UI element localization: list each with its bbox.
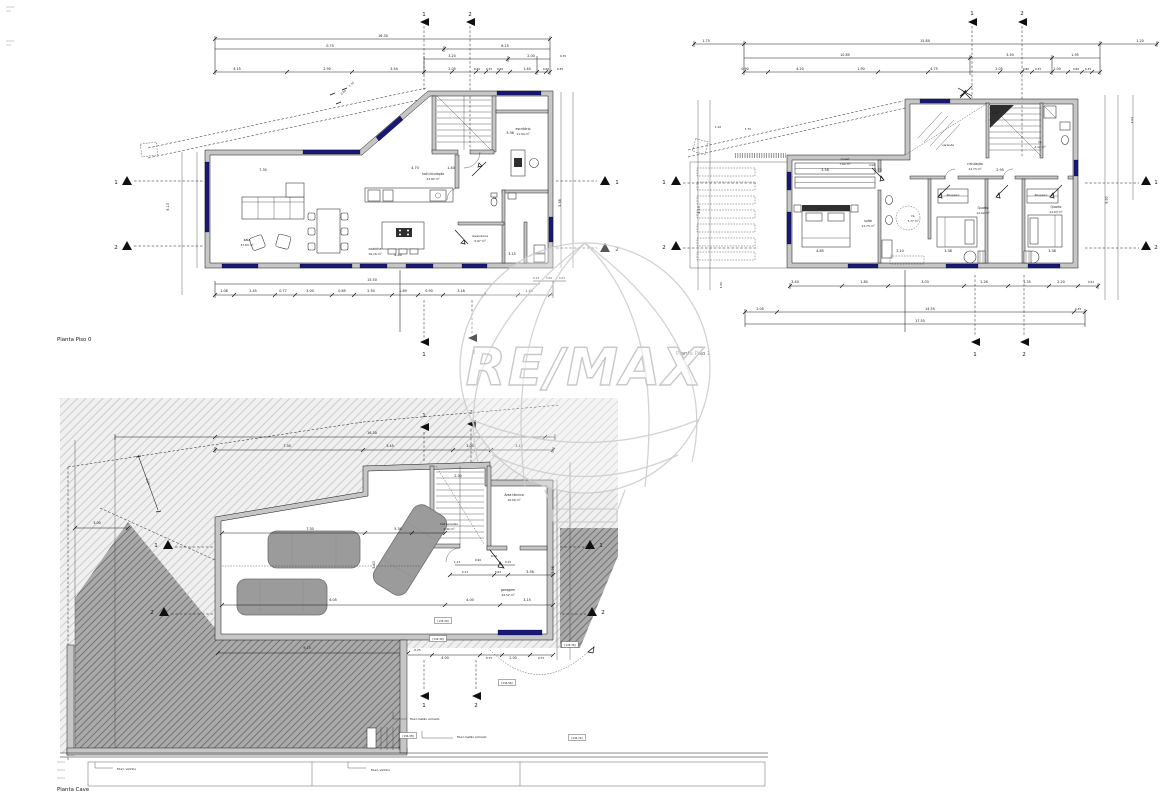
dim-label: 3.56 (526, 570, 534, 574)
room-label: suite (864, 219, 872, 223)
dim-label: 0.35 (1085, 67, 1091, 71)
dim-label: 5.58 (558, 199, 562, 207)
dim-label: 0.15 (505, 560, 511, 564)
piso0-dim-labels: 16.300.756.153.202.000.354.152.903.542.0… (166, 34, 566, 293)
plan-piso1: 1.7515.801.2010.853.501.950.904.201.904.… (662, 11, 1159, 358)
dim-label: 2.90 (323, 67, 331, 71)
dim-label: 1.08 (220, 289, 228, 293)
dim-label: 0.52 (1088, 280, 1094, 284)
room-label: Área técnica (504, 492, 523, 497)
dim-label: 1.95 (1071, 53, 1079, 57)
dim-label: 4.00 (441, 656, 449, 660)
section-marker: 1 (1154, 180, 1158, 186)
section-marker: 1 (114, 180, 118, 186)
piso0-furniture (242, 150, 545, 262)
blueprint-canvas: 16.300.756.153.202.000.354.152.903.542.0… (0, 0, 1167, 800)
dim-label: 0.62 (495, 570, 501, 574)
room-area: 12.63 m² (1049, 210, 1062, 214)
section-marker: 2 (150, 610, 154, 616)
dim-label: 9.15 (303, 646, 311, 650)
room-label: I.S. (493, 196, 498, 200)
dim-label: 2.95 (996, 168, 1004, 172)
dim-label: 3.50 (1006, 53, 1014, 57)
dim-label: 1.14 (348, 81, 355, 88)
dim-label: 1.80 (860, 280, 868, 284)
dim-label: 2.73 (874, 168, 882, 172)
section-marker: 2 (114, 245, 118, 251)
dim-label: 0.35 (486, 67, 492, 71)
dim-label: 9.97 (1105, 196, 1109, 204)
room-label: sala (244, 238, 251, 242)
dim-label: 2.05 (448, 67, 456, 71)
section-marker: 2 (662, 245, 666, 251)
dim-label: 16.30 (367, 431, 377, 435)
room-area: 4.42 m² (443, 527, 454, 531)
dim-label: 5.40 (372, 561, 376, 569)
room-label: hall escadas (440, 522, 458, 526)
drawing-sheet: 16.300.756.153.202.000.354.152.903.542.0… (0, 0, 1167, 800)
dim-label: 0.90 (475, 558, 481, 562)
room-label: Quarto (1051, 205, 1062, 209)
piso0-stairs (437, 96, 491, 150)
dim-label: 0.35 (1075, 307, 1081, 311)
section-marker: 1 (422, 352, 426, 358)
dim-label: 2.30 (454, 474, 462, 478)
piso1-dim-lines (692, 41, 1159, 332)
dim-label: 14.55 (925, 307, 935, 311)
wall-callout: Muro vizinho (371, 768, 390, 772)
dim-label: 2.05 (995, 67, 1003, 71)
wall-callout: Muro betão armado (410, 717, 440, 721)
dim-label: 15.80 (920, 39, 930, 43)
dim-label: 0.77 (279, 289, 287, 293)
section-marker: 1 (599, 543, 603, 549)
room-label: garagem (501, 588, 515, 592)
dim-label: 4.75 (930, 67, 938, 71)
dim-label: 3.00 (306, 289, 314, 293)
dim-label: 1.20 (1136, 39, 1144, 43)
dim-label: 0.60 (1073, 67, 1079, 71)
dim-label: 3.40 (791, 280, 799, 284)
plan-title-cave: Planta Cave (57, 787, 90, 793)
wall-callout: Muro betão armado (457, 735, 487, 739)
dim-label: 1.13 (454, 560, 460, 564)
dim-label: 0.35 (560, 54, 566, 58)
room-area: 4.12 m² (1034, 145, 1045, 149)
room-label: lavandaria (472, 234, 488, 238)
dim-label: 3.38 (944, 249, 952, 253)
section-marker: 1 (615, 180, 619, 186)
room-area: 7.77 m² (907, 219, 918, 223)
dim-label: 3.00 (93, 521, 101, 525)
dim-label: 4.00 (466, 598, 474, 602)
section-marker: 1 (422, 12, 426, 18)
dim-label: 1.10 (715, 125, 721, 129)
page-marks (6, 7, 14, 45)
level-tag: [134.40] (437, 619, 448, 623)
piso1-marker-labels: 12121212 (662, 11, 1158, 358)
dim-label: -0.25 (413, 648, 420, 652)
dim-label: 0.40 (491, 554, 497, 558)
dim-label: 0.75 (538, 656, 544, 660)
section-marker: 2 (1154, 245, 1158, 251)
dim-label: 1.90 (857, 67, 865, 71)
section-marker: 2 (468, 12, 472, 18)
room-label: circulação (967, 162, 983, 166)
dim-label: 17.55 (915, 319, 925, 323)
dim-label: 4.13 (697, 206, 701, 214)
section-marker: 1 (662, 180, 666, 186)
room-area: 23.92 m² (426, 177, 439, 181)
dim-label: 6.15 (501, 44, 509, 48)
dim-label: 3.00 (466, 444, 474, 448)
room-label: escritório (516, 127, 531, 131)
watermark-text: RE/MAX (466, 338, 706, 398)
room-label: cozinha (368, 247, 381, 251)
room-area: 14.73 m² (861, 224, 874, 228)
room-area: 11.94 m² (516, 132, 529, 136)
dim-label: 7.30 (306, 527, 314, 531)
dim-label: 1.02 (1130, 117, 1134, 123)
dim-label: 2.26 (980, 280, 988, 284)
dim-label: 2.00 (527, 54, 535, 58)
dim-label: 0.35 (1035, 67, 1041, 71)
dim-label: 3.20 (448, 54, 456, 58)
dim-label: 0.75 (326, 44, 334, 48)
dim-label: 2.50 (367, 289, 375, 293)
room-label: I.S. (911, 214, 916, 218)
dim-label: 3.38 (1048, 249, 1056, 253)
dim-label: 4.15 (233, 67, 241, 71)
room-label: Quarto (978, 206, 989, 210)
dim-label: 3.45 (386, 444, 394, 448)
room-label: Roupeiro (1035, 193, 1048, 197)
dim-label: 10.85 (840, 53, 850, 57)
dim-label: 7.36 (551, 566, 555, 574)
dim-label: 6.05 (329, 598, 337, 602)
room-area: 10.00 m² (507, 498, 520, 502)
room-label: varanda (942, 143, 954, 147)
dim-label: 1.50 (719, 282, 723, 288)
piso1-canopy (688, 86, 974, 157)
dim-label: 3.15 (523, 598, 531, 602)
dim-label: 0.35 (557, 67, 563, 71)
level-tag: [134.38] (402, 734, 413, 738)
level-tag: [134.36] (564, 643, 575, 647)
dim-label: 15.50 (367, 278, 377, 282)
piso1-slat-deck (690, 153, 787, 268)
dim-label: 3.58 (821, 168, 829, 172)
room-area: 14.73 m² (968, 167, 981, 171)
room-label: hall circulação (422, 172, 444, 176)
section-marker: 1 (422, 703, 426, 709)
dim-label: 2.05 (756, 307, 764, 311)
dim-label: 5.30 (394, 527, 402, 531)
dim-label: 0.80 (1023, 67, 1029, 71)
level-tag: [134.72] (571, 736, 582, 740)
section-marker: 1 (154, 543, 158, 549)
section-marker: 2 (1020, 11, 1024, 17)
dim-label: 0.60 (497, 67, 503, 71)
section-marker: 1 (970, 11, 974, 17)
dim-label: 4.70 (411, 166, 419, 170)
room-area: 37.63 m² (240, 243, 253, 247)
room-area: 44.52 m² (501, 593, 514, 597)
dim-label: 1.69 (399, 289, 407, 293)
room-area: 16.16 m² (368, 252, 381, 256)
dim-label: 1.00 (1053, 67, 1061, 71)
dim-label: 3.03 (921, 280, 929, 284)
room-label: Roupeiro (947, 193, 960, 197)
dim-label: 2.45 (249, 289, 257, 293)
room-label: closet (841, 157, 851, 161)
dim-label: 4.20 (796, 67, 804, 71)
dim-label: 4.40 (394, 253, 402, 257)
section-marker: 2 (1022, 352, 1026, 358)
dim-label: 3.36 (506, 131, 514, 135)
dim-label: 4.85 (816, 249, 824, 253)
dim-label: 1.40 (523, 67, 531, 71)
dim-label: 1.40 (447, 166, 455, 170)
dim-label: 0.60 (474, 67, 480, 71)
dim-label: 0.90 (425, 289, 433, 293)
dim-label: 0.75 (486, 656, 492, 660)
dim-label: 2.13 (462, 570, 468, 574)
dim-label: 1.00 (991, 111, 999, 115)
room-area: 12.02 m² (976, 211, 989, 215)
room-label: hall (869, 163, 874, 167)
dim-label: 3.54 (390, 67, 398, 71)
dim-label: 16.30 (378, 34, 388, 38)
piso0-canopy (140, 88, 428, 158)
section-marker: 1 (973, 352, 977, 358)
dim-label: 7.30 (259, 168, 267, 172)
dim-label: 2.00 (509, 656, 517, 660)
dim-label: 2.10 (896, 249, 904, 253)
room-area: 7.62 m² (839, 162, 850, 166)
dim-label: 2.20 (1057, 280, 1065, 284)
dim-label: 7.30 (283, 444, 291, 448)
dim-label: 1.75 (745, 127, 751, 131)
section-marker: 1 (422, 413, 426, 419)
dim-label: 1.35 (1023, 280, 1031, 284)
room-label: I.S. (1038, 140, 1043, 144)
piso1-furniture (794, 103, 1070, 264)
dim-label: 3.15 (508, 252, 516, 256)
plan-title-piso0: Planta Piso 0 (57, 337, 92, 343)
dim-label: 0.94 (340, 89, 347, 96)
wall-callout: Muro vizinho (117, 767, 136, 771)
section-marker: 2 (601, 610, 605, 616)
level-tag: [134.56] (501, 681, 512, 685)
dim-label: 0.85 (338, 289, 346, 293)
room-area: 5.67 m² (474, 239, 485, 243)
level-tag: [134.38] (432, 637, 443, 641)
dim-label: 0.90 (741, 67, 749, 71)
section-marker: 2 (474, 703, 478, 709)
dim-label: 3.16 (457, 289, 465, 293)
dim-label: 9.13 (166, 203, 170, 211)
dim-label: 1.75 (702, 39, 710, 43)
dim-label: 0.60 (543, 67, 549, 71)
